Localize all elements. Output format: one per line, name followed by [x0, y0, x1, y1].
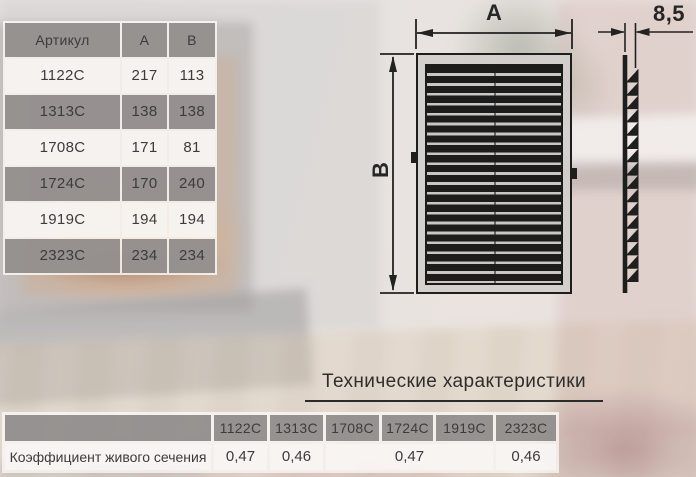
dimension-lines [360, 0, 696, 310]
dim-a-cell: 170 [122, 167, 167, 201]
specs-column-header: 1724C [382, 415, 433, 441]
size-header-article: Артикул [5, 23, 120, 57]
dim-depth-arrows [611, 28, 650, 36]
specs-title: Технические характеристики [305, 371, 603, 402]
specs-row-label: Коэффициент живого сечения [5, 444, 211, 470]
dim-b-cell: 81 [169, 131, 215, 165]
size-table: Артикул A B 1122C 217 113 1313C 138 138 … [3, 21, 217, 275]
article-cell: 2323C [5, 239, 120, 273]
dim-a-cell: 171 [122, 131, 167, 165]
dim-a-cell: 234 [122, 239, 167, 273]
article-cell: 1313C [5, 95, 120, 129]
article-cell: 1919C [5, 203, 120, 237]
dim-b-cell: 194 [169, 203, 215, 237]
dimension-label-a: A [468, 0, 520, 26]
specs-value-cell: 0,47 [214, 444, 267, 470]
dim-b-cell: 240 [169, 167, 215, 201]
specs-column-header: 2323C [496, 415, 556, 441]
grille-technical-drawing: A B 8,5 [360, 0, 696, 310]
article-cell: 1724C [5, 167, 120, 201]
specs-value-cell-merged: 0,47 [326, 444, 493, 470]
specs-value-cell: 0,46 [270, 444, 323, 470]
dim-b-cell: 234 [169, 239, 215, 273]
article-cell: 1122C [5, 59, 120, 93]
dimension-label-depth: 8,5 [642, 1, 696, 27]
size-header-b: B [169, 23, 215, 57]
grille-side-view-sawtooth [627, 70, 638, 282]
size-header-a: A [122, 23, 167, 57]
dim-b-cell: 113 [169, 59, 215, 93]
grille-side-view-bar [623, 55, 628, 293]
dim-a-cell: 138 [122, 95, 167, 129]
specs-column-header: 1313C [270, 415, 323, 441]
specs-table: 1122C 1313C 1708C 1724C 1919C 2323C Коэф… [2, 412, 559, 473]
specs-value-cell: 0,46 [496, 444, 556, 470]
dim-a-cell: 194 [122, 203, 167, 237]
dim-b-cell: 138 [169, 95, 215, 129]
specs-corner-cell [5, 415, 211, 441]
specs-column-header: 1919C [436, 415, 493, 441]
article-cell: 1708C [5, 131, 120, 165]
specs-column-header: 1708C [326, 415, 379, 441]
specs-column-header: 1122C [214, 415, 267, 441]
dimension-label-b: B [368, 151, 394, 189]
spec-sheet-page: Артикул A B 1122C 217 113 1313C 138 138 … [0, 0, 696, 477]
dim-a-cell: 217 [122, 59, 167, 93]
